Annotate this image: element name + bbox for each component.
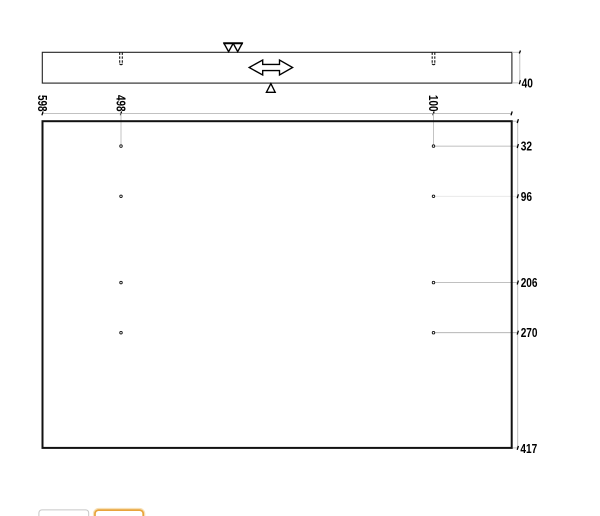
- svg-text:40: 40: [522, 76, 533, 91]
- svg-text:417: 417: [520, 441, 537, 456]
- svg-text:100: 100: [426, 95, 441, 112]
- svg-text:206: 206: [521, 275, 538, 290]
- svg-text:498: 498: [113, 95, 128, 112]
- svg-text:598: 598: [35, 95, 50, 112]
- svg-text:270: 270: [521, 325, 538, 340]
- svg-text:96: 96: [521, 189, 532, 204]
- svg-text:32: 32: [521, 139, 532, 154]
